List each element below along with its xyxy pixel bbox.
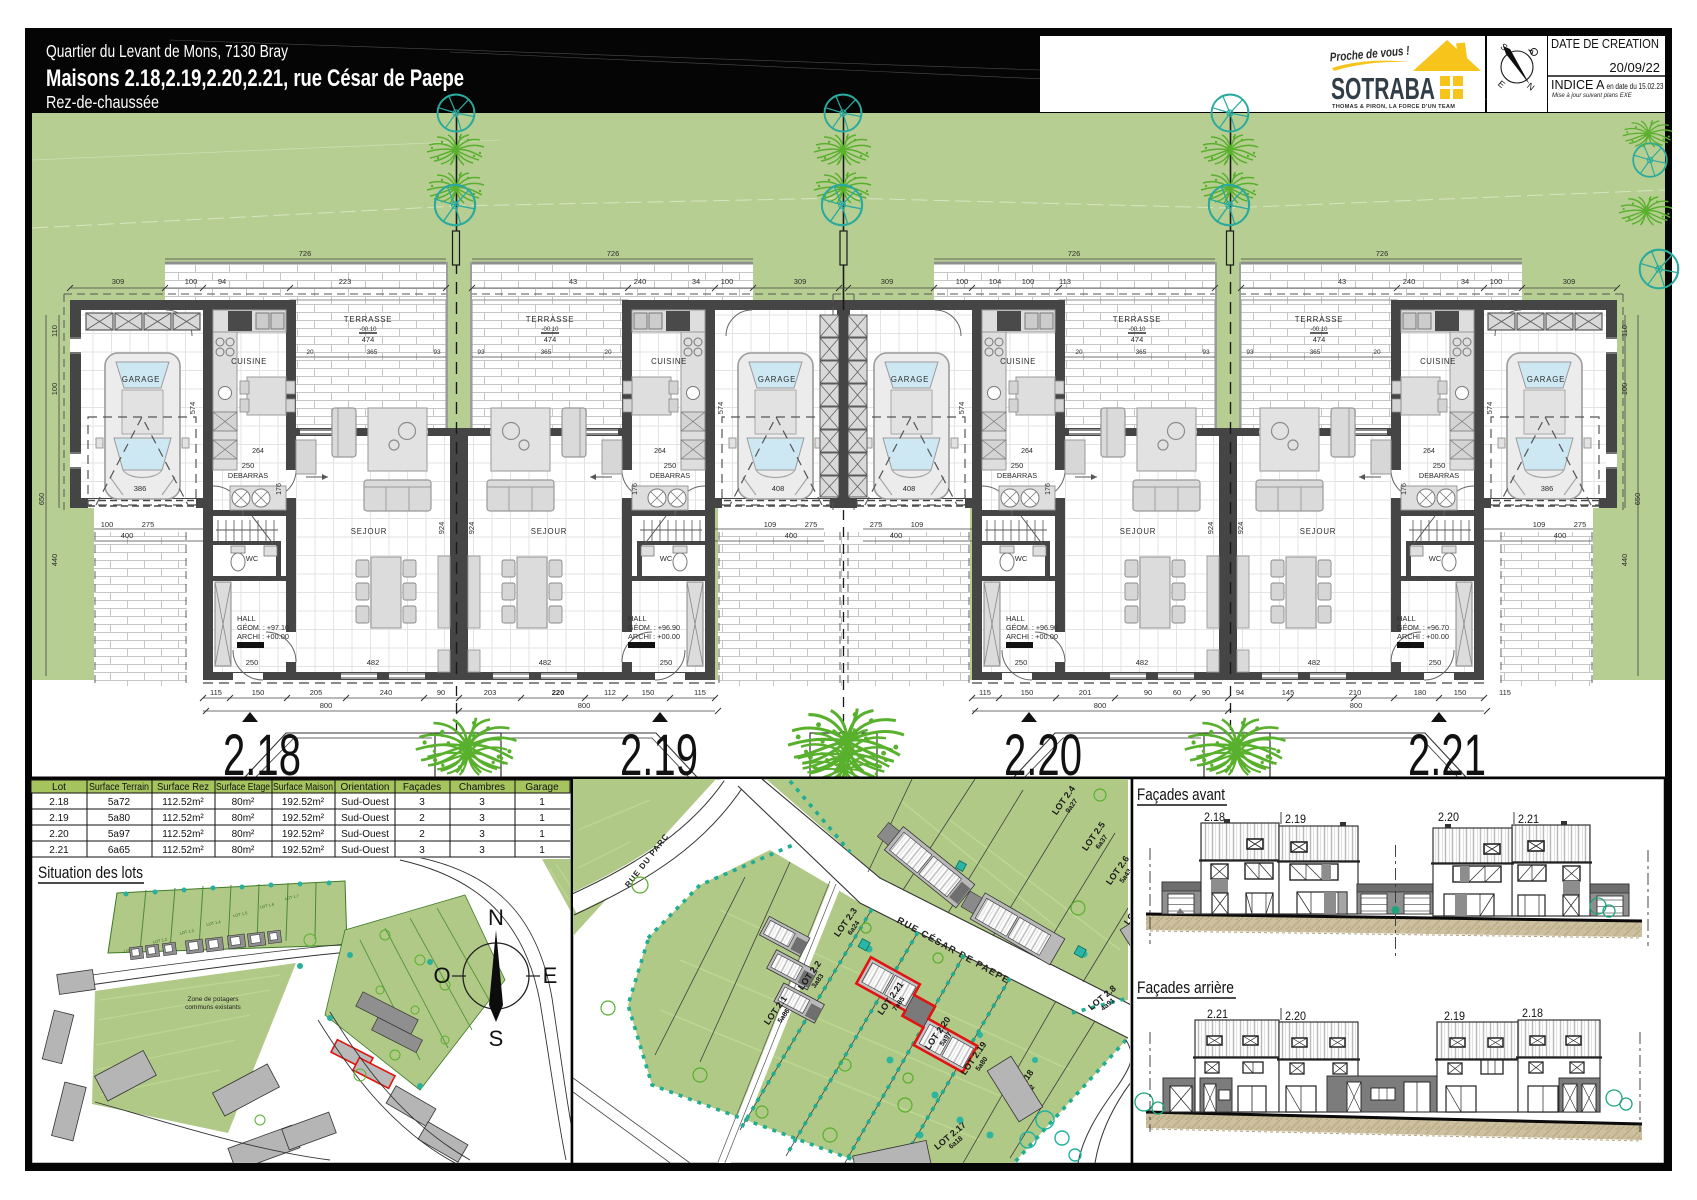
- svg-text:Chambres: Chambres: [459, 782, 505, 793]
- svg-text:Rez-de-chaussée: Rez-de-chaussée: [46, 92, 159, 112]
- svg-text:192.52m²: 192.52m²: [282, 813, 325, 824]
- svg-text:2.19: 2.19: [1444, 1009, 1465, 1023]
- svg-text:2.19: 2.19: [49, 813, 69, 824]
- svg-text:250: 250: [1433, 461, 1446, 470]
- svg-text:240: 240: [380, 688, 393, 697]
- svg-text:90: 90: [1144, 688, 1152, 697]
- svg-text:150: 150: [1021, 688, 1034, 697]
- svg-text:400: 400: [890, 531, 903, 540]
- svg-text:TERRASSE: TERRASSE: [344, 315, 392, 324]
- svg-text:SEJOUR: SEJOUR: [1300, 527, 1336, 536]
- svg-text:223: 223: [339, 277, 352, 286]
- svg-text:2.18: 2.18: [1522, 1006, 1543, 1020]
- svg-text:43: 43: [1338, 277, 1346, 286]
- svg-text:SEJOUR: SEJOUR: [531, 527, 567, 536]
- svg-text:800: 800: [320, 701, 333, 710]
- svg-text:365: 365: [1310, 349, 1321, 356]
- svg-text:924: 924: [467, 522, 476, 535]
- svg-text:TERRASSE: TERRASSE: [1295, 315, 1343, 324]
- svg-text:93: 93: [477, 349, 485, 356]
- svg-text:240: 240: [634, 277, 647, 286]
- svg-text:34: 34: [692, 277, 700, 286]
- svg-text:176: 176: [1401, 483, 1408, 495]
- svg-text:20: 20: [1075, 349, 1083, 356]
- svg-text:3: 3: [479, 797, 485, 808]
- svg-text:309: 309: [112, 277, 125, 286]
- svg-text:SOTRABA: SOTRABA: [1331, 71, 1435, 106]
- svg-text:Sud-Ouest: Sud-Ouest: [341, 829, 389, 840]
- svg-text:Situation des lots: Situation des lots: [38, 863, 143, 882]
- svg-text:E: E: [543, 963, 558, 988]
- svg-text:-00.10: -00.10: [541, 327, 559, 333]
- svg-text:2.18: 2.18: [1204, 810, 1225, 824]
- svg-text:250: 250: [664, 461, 677, 470]
- svg-text:2: 2: [419, 829, 425, 840]
- svg-text:100: 100: [721, 277, 734, 286]
- svg-text:CUISINE: CUISINE: [1420, 357, 1456, 366]
- svg-text:100: 100: [1022, 277, 1035, 286]
- svg-text:365: 365: [1136, 349, 1147, 356]
- svg-text:93: 93: [433, 349, 441, 356]
- svg-text:3: 3: [419, 797, 425, 808]
- svg-text:THOMAS & PIRON, LA FORCE D'UN: THOMAS & PIRON, LA FORCE D'UN TEAM: [1332, 104, 1455, 110]
- svg-text:726: 726: [607, 249, 620, 258]
- svg-text:2.19: 2.19: [1285, 812, 1306, 826]
- svg-text:440: 440: [50, 554, 59, 567]
- svg-text:150: 150: [1454, 688, 1467, 697]
- svg-text:Maisons 2.18,2.19,2.20,2.21, r: Maisons 2.18,2.19,2.20,2.21, rue César d…: [46, 65, 464, 92]
- svg-text:1: 1: [539, 797, 545, 808]
- svg-text:90: 90: [437, 688, 445, 697]
- svg-text:Zone de potagers: Zone de potagers: [188, 996, 240, 1003]
- svg-text:100: 100: [1490, 277, 1503, 286]
- svg-text:GARAGE: GARAGE: [758, 375, 796, 384]
- svg-text:Façades: Façades: [403, 782, 441, 793]
- svg-text:Mise à jour suivant plans EXE: Mise à jour suivant plans EXE: [1552, 93, 1633, 99]
- svg-text:275: 275: [142, 520, 155, 529]
- svg-text:115: 115: [694, 688, 706, 697]
- svg-text:574: 574: [188, 402, 197, 415]
- svg-text:474: 474: [1313, 335, 1326, 344]
- svg-text:DEBARRAS: DEBARRAS: [1419, 471, 1459, 480]
- svg-text:SEJOUR: SEJOUR: [351, 527, 387, 536]
- svg-text:GÉOM. : +97.10: GÉOM. : +97.10: [237, 623, 289, 632]
- svg-text:100: 100: [50, 383, 59, 396]
- svg-text:3: 3: [479, 829, 485, 840]
- svg-text:90: 90: [1202, 688, 1210, 697]
- svg-text:20: 20: [604, 349, 612, 356]
- svg-text:400: 400: [785, 531, 798, 540]
- svg-text:250: 250: [1429, 658, 1442, 667]
- svg-text:574: 574: [957, 402, 966, 415]
- svg-text:80m²: 80m²: [232, 797, 255, 808]
- svg-text:365: 365: [367, 349, 378, 356]
- svg-text:365: 365: [541, 349, 552, 356]
- svg-text:192.52m²: 192.52m²: [282, 829, 325, 840]
- svg-text:DATE DE CREATION: DATE DE CREATION: [1551, 37, 1659, 51]
- svg-text:94: 94: [1236, 688, 1244, 697]
- svg-text:220: 220: [552, 688, 565, 697]
- svg-text:408: 408: [772, 484, 785, 493]
- svg-text:275: 275: [1574, 520, 1587, 529]
- svg-text:309: 309: [1563, 277, 1576, 286]
- svg-text:-00.10: -00.10: [1310, 327, 1328, 333]
- svg-text:250: 250: [242, 461, 255, 470]
- svg-text:650: 650: [37, 493, 46, 506]
- svg-text:5a80: 5a80: [108, 813, 131, 824]
- svg-text:113: 113: [1059, 277, 1071, 286]
- svg-text:Orientation: Orientation: [341, 782, 390, 793]
- svg-text:726: 726: [1376, 249, 1389, 258]
- svg-text:HALL: HALL: [1397, 614, 1416, 623]
- svg-text:SEJOUR: SEJOUR: [1120, 527, 1156, 536]
- svg-text:924: 924: [1206, 522, 1215, 535]
- svg-text:3: 3: [479, 813, 485, 824]
- svg-text:250: 250: [1011, 461, 1024, 470]
- svg-text:93: 93: [1246, 349, 1254, 356]
- svg-text:GARAGE: GARAGE: [891, 375, 929, 384]
- svg-text:Garage: Garage: [525, 782, 559, 793]
- svg-text:34: 34: [1461, 277, 1469, 286]
- svg-text:20/09/22: 20/09/22: [1609, 60, 1660, 75]
- svg-text:205: 205: [310, 688, 323, 697]
- svg-text:112.52m²: 112.52m²: [162, 813, 204, 824]
- svg-text:WC: WC: [1015, 554, 1028, 563]
- svg-text:109: 109: [911, 520, 924, 529]
- svg-text:112.52m²: 112.52m²: [162, 845, 204, 856]
- svg-text:309: 309: [881, 277, 894, 286]
- svg-text:203: 203: [484, 688, 497, 697]
- svg-text:482: 482: [1308, 658, 1321, 667]
- svg-text:440: 440: [1620, 554, 1629, 567]
- svg-text:250: 250: [1015, 658, 1028, 667]
- svg-text:GÉOM. : +96.70: GÉOM. : +96.70: [1397, 623, 1449, 632]
- svg-text:WC: WC: [246, 554, 259, 563]
- svg-text:ARCHI : +00.00: ARCHI : +00.00: [628, 632, 680, 641]
- svg-text:2.20: 2.20: [49, 829, 69, 840]
- svg-text:100: 100: [956, 277, 969, 286]
- svg-text:TERRASSE: TERRASSE: [1113, 315, 1161, 324]
- svg-text:20: 20: [306, 349, 314, 356]
- svg-text:2.18: 2.18: [49, 797, 69, 808]
- svg-text:5a72: 5a72: [108, 797, 131, 808]
- svg-text:264: 264: [252, 448, 264, 455]
- svg-text:2.21: 2.21: [49, 845, 69, 856]
- svg-text:150: 150: [642, 688, 655, 697]
- svg-text:115: 115: [210, 688, 222, 697]
- svg-text:80m²: 80m²: [232, 813, 255, 824]
- svg-text:201: 201: [1079, 688, 1092, 697]
- svg-text:Surface Terrain: Surface Terrain: [89, 782, 149, 793]
- svg-text:176: 176: [276, 483, 283, 495]
- svg-text:WC: WC: [1429, 554, 1442, 563]
- svg-text:HALL: HALL: [628, 614, 647, 623]
- svg-text:Lot: Lot: [52, 782, 66, 793]
- svg-text:110: 110: [50, 325, 59, 337]
- svg-text:924: 924: [1236, 522, 1245, 535]
- svg-text:Sud-Ouest: Sud-Ouest: [341, 845, 389, 856]
- svg-text:N: N: [488, 905, 504, 930]
- svg-text:Surface Etage: Surface Etage: [216, 782, 270, 793]
- svg-text:CUISINE: CUISINE: [651, 357, 687, 366]
- svg-text:-00.10: -00.10: [1128, 327, 1146, 333]
- svg-text:Sud-Ouest: Sud-Ouest: [341, 813, 389, 824]
- svg-text:408: 408: [903, 484, 916, 493]
- svg-text:2.21: 2.21: [1207, 1007, 1228, 1021]
- svg-text:1: 1: [539, 829, 545, 840]
- svg-text:726: 726: [1068, 249, 1081, 258]
- svg-text:Surface Maison: Surface Maison: [273, 782, 333, 793]
- svg-text:400: 400: [1554, 531, 1567, 540]
- svg-text:94: 94: [218, 277, 226, 286]
- svg-text:180: 180: [1414, 688, 1427, 697]
- svg-text:250: 250: [246, 658, 259, 667]
- svg-text:109: 109: [764, 520, 777, 529]
- svg-text:GARAGE: GARAGE: [1527, 375, 1565, 384]
- svg-text:Façades avant: Façades avant: [1137, 785, 1225, 804]
- svg-text:482: 482: [367, 658, 380, 667]
- svg-text:100: 100: [185, 277, 198, 286]
- svg-text:474: 474: [1131, 335, 1144, 344]
- svg-text:400: 400: [121, 531, 134, 540]
- svg-text:DEBARRAS: DEBARRAS: [650, 471, 690, 480]
- svg-text:WC: WC: [660, 554, 673, 563]
- svg-text:3: 3: [479, 845, 485, 856]
- svg-text:482: 482: [1136, 658, 1149, 667]
- svg-text:386: 386: [134, 484, 147, 493]
- svg-text:240: 240: [1403, 277, 1416, 286]
- svg-text:110: 110: [1620, 325, 1629, 337]
- svg-text:112.52m²: 112.52m²: [162, 797, 204, 808]
- svg-text:1: 1: [539, 813, 545, 824]
- svg-text:150: 150: [252, 688, 265, 697]
- svg-text:115: 115: [1499, 688, 1511, 697]
- svg-text:800: 800: [1350, 701, 1363, 710]
- svg-text:192.52m²: 192.52m²: [282, 797, 325, 808]
- svg-text:60: 60: [1173, 688, 1181, 697]
- svg-text:Quartier du Levant de Mons, 71: Quartier du Levant de Mons, 7130 Bray: [46, 41, 288, 61]
- svg-text:800: 800: [578, 701, 591, 710]
- svg-text:574: 574: [716, 402, 725, 415]
- svg-text:20: 20: [1373, 349, 1381, 356]
- svg-text:176: 176: [632, 483, 639, 495]
- svg-text:275: 275: [870, 520, 883, 529]
- svg-text:80m²: 80m²: [232, 845, 255, 856]
- svg-text:192.52m²: 192.52m²: [282, 845, 325, 856]
- svg-text:CUISINE: CUISINE: [1000, 357, 1036, 366]
- svg-text:275: 275: [805, 520, 818, 529]
- svg-text:2.20: 2.20: [1285, 1009, 1306, 1023]
- svg-text:5a97: 5a97: [108, 829, 131, 840]
- svg-text:264: 264: [1423, 448, 1435, 455]
- svg-text:250: 250: [660, 658, 673, 667]
- svg-text:650: 650: [1633, 493, 1642, 506]
- svg-text:726: 726: [299, 249, 312, 258]
- svg-text:HALL: HALL: [237, 614, 256, 623]
- svg-text:2.21: 2.21: [1518, 812, 1539, 826]
- svg-text:115: 115: [979, 688, 991, 697]
- svg-text:176: 176: [1045, 483, 1052, 495]
- svg-text:S: S: [489, 1026, 504, 1051]
- svg-text:Sud-Ouest: Sud-Ouest: [341, 797, 389, 808]
- svg-text:264: 264: [654, 448, 666, 455]
- svg-text:104: 104: [989, 277, 1002, 286]
- svg-text:Façades arrière: Façades arrière: [1137, 978, 1234, 997]
- svg-text:309: 309: [794, 277, 807, 286]
- svg-text:800: 800: [1094, 701, 1107, 710]
- svg-text:O: O: [433, 963, 450, 988]
- svg-text:43: 43: [569, 277, 577, 286]
- svg-text:DEBARRAS: DEBARRAS: [228, 471, 268, 480]
- svg-text:ARCHI : +00.00: ARCHI : +00.00: [237, 632, 289, 641]
- svg-text:2: 2: [419, 813, 425, 824]
- svg-text:112: 112: [604, 688, 616, 697]
- svg-text:TERRASSE: TERRASSE: [526, 315, 574, 324]
- svg-text:112.52m²: 112.52m²: [162, 829, 204, 840]
- svg-text:1: 1: [539, 845, 545, 856]
- svg-text:386: 386: [1541, 484, 1554, 493]
- svg-text:GÉOM. : +96.90: GÉOM. : +96.90: [1006, 623, 1058, 632]
- svg-text:-00.10: -00.10: [359, 327, 377, 333]
- svg-text:474: 474: [362, 335, 375, 344]
- svg-text:100: 100: [101, 520, 114, 529]
- svg-text:474: 474: [544, 335, 557, 344]
- svg-text:80m²: 80m²: [232, 829, 255, 840]
- svg-text:3: 3: [419, 845, 425, 856]
- svg-text:communs existants: communs existants: [185, 1004, 241, 1011]
- svg-text:HALL: HALL: [1006, 614, 1025, 623]
- svg-text:2.20: 2.20: [1438, 810, 1459, 824]
- svg-text:GÉOM. : +96.90: GÉOM. : +96.90: [628, 623, 680, 632]
- svg-text:DEBARRAS: DEBARRAS: [997, 471, 1037, 480]
- svg-text:GARAGE: GARAGE: [122, 375, 160, 384]
- svg-text:574: 574: [1485, 402, 1494, 415]
- svg-text:Surface Rez: Surface Rez: [157, 782, 209, 793]
- svg-text:924: 924: [437, 522, 446, 535]
- svg-text:482: 482: [539, 658, 552, 667]
- svg-text:6a65: 6a65: [108, 845, 131, 856]
- svg-text:264: 264: [1021, 448, 1033, 455]
- svg-text:CUISINE: CUISINE: [231, 357, 267, 366]
- svg-text:93: 93: [1202, 349, 1210, 356]
- svg-text:100: 100: [1620, 383, 1629, 396]
- svg-text:210: 210: [1349, 688, 1362, 697]
- svg-text:ARCHI : +00.00: ARCHI : +00.00: [1006, 632, 1058, 641]
- svg-text:109: 109: [1533, 520, 1546, 529]
- svg-text:ARCHI : +00.00: ARCHI : +00.00: [1397, 632, 1449, 641]
